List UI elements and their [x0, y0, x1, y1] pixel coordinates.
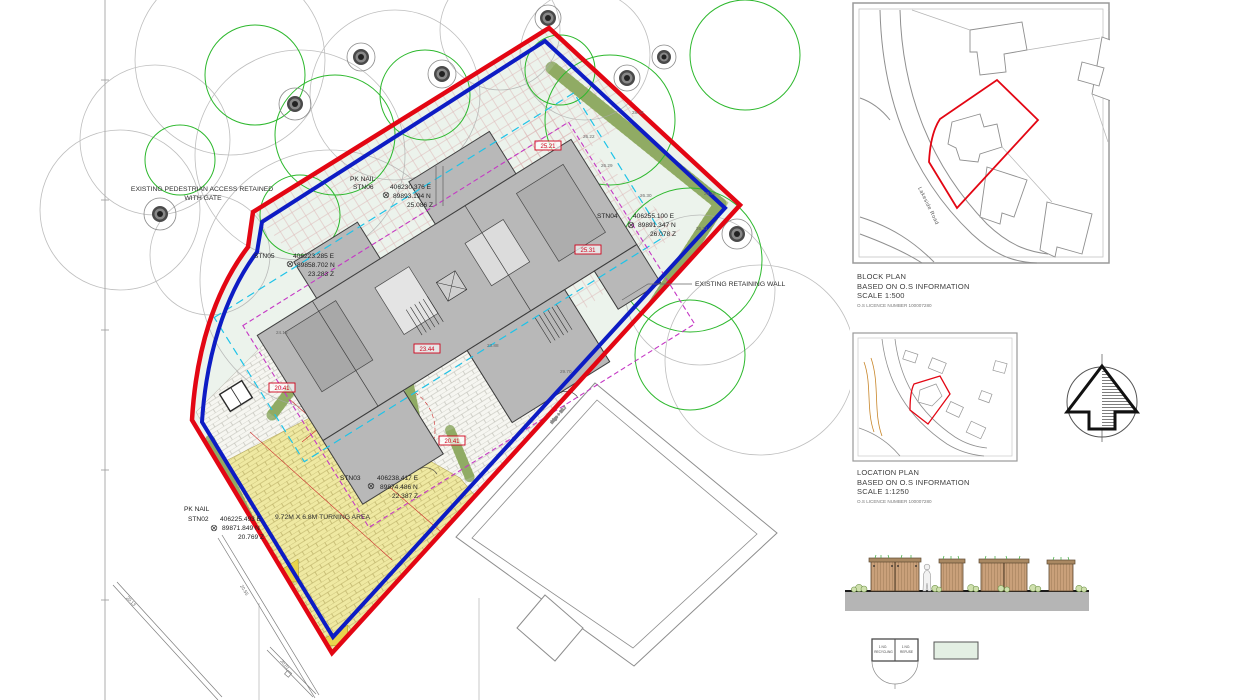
tree-icon [652, 45, 676, 69]
svg-text:26.29: 26.29 [601, 163, 613, 168]
tree-icon [144, 198, 176, 230]
svg-text:28.58: 28.58 [704, 191, 716, 196]
bin-store-elevation [843, 546, 1095, 618]
site-plan-sheet: ridge + 30.7 [0, 0, 1250, 700]
retaining-wall-label: EXISTING RETAINING WALL [695, 281, 785, 288]
turning-area-label: 9.72M X 6.8M TURNING AREA [275, 514, 371, 521]
ground-strip [845, 591, 1089, 611]
bin-store-shed [869, 558, 921, 591]
svg-text:20.55: 20.55 [239, 584, 250, 597]
north-arrow-icon [1056, 352, 1148, 444]
landscape-key-swatch [934, 642, 978, 659]
level-marker: 25.31 [575, 245, 601, 254]
svg-text:28.42: 28.42 [632, 110, 644, 115]
level-marker: 20.41 [269, 383, 295, 392]
svg-text:20.41: 20.41 [444, 439, 460, 445]
svg-text:20.13: 20.13 [125, 595, 137, 607]
refuse-cell-label: 1 NO. REFUSE [900, 645, 913, 654]
svg-text:26.30: 26.30 [640, 193, 652, 198]
tree-icon [428, 60, 456, 88]
level-marker: 23.44 [414, 344, 440, 353]
svg-text:20.01: 20.01 [279, 659, 290, 671]
location-plan-map [852, 332, 1018, 462]
door-swing-arcs [872, 661, 918, 689]
level-marker: 20.41 [439, 436, 465, 445]
svg-text:25.31: 25.31 [580, 248, 596, 254]
tree-icon [722, 219, 752, 249]
tree-icon [347, 43, 375, 71]
svg-text:24.15: 24.15 [276, 330, 288, 335]
svg-text:26.21: 26.21 [696, 226, 708, 231]
block-plan-caption: BLOCK PLAN BASED ON O.S INFORMATION SCAL… [857, 272, 970, 310]
svg-text:23.44: 23.44 [419, 347, 435, 353]
bin-store-unit [979, 559, 1029, 591]
block-plan-map: Lakeside Road [852, 2, 1110, 264]
location-plan-caption: LOCATION PLAN BASED ON O.S INFORMATION S… [857, 468, 970, 506]
station-marker-icon [211, 525, 217, 531]
svg-text:20.41: 20.41 [274, 386, 290, 392]
svg-text:29.70: 29.70 [560, 369, 572, 374]
bin-store-unit [1047, 560, 1075, 591]
level-marker: 25.21 [535, 141, 561, 150]
person-figure [923, 564, 931, 591]
tree-icon [614, 65, 640, 91]
refuse-store-plan: 1 NO. RECYCLING 1 NO. REFUSE [868, 634, 1020, 694]
svg-text:26.22: 26.22 [583, 134, 595, 139]
main-site-plan: ridge + 30.7 [0, 0, 850, 700]
svg-text:23.88: 23.88 [487, 343, 499, 348]
svg-text:25.21: 25.21 [540, 144, 556, 150]
bin-store-unit [939, 559, 965, 591]
